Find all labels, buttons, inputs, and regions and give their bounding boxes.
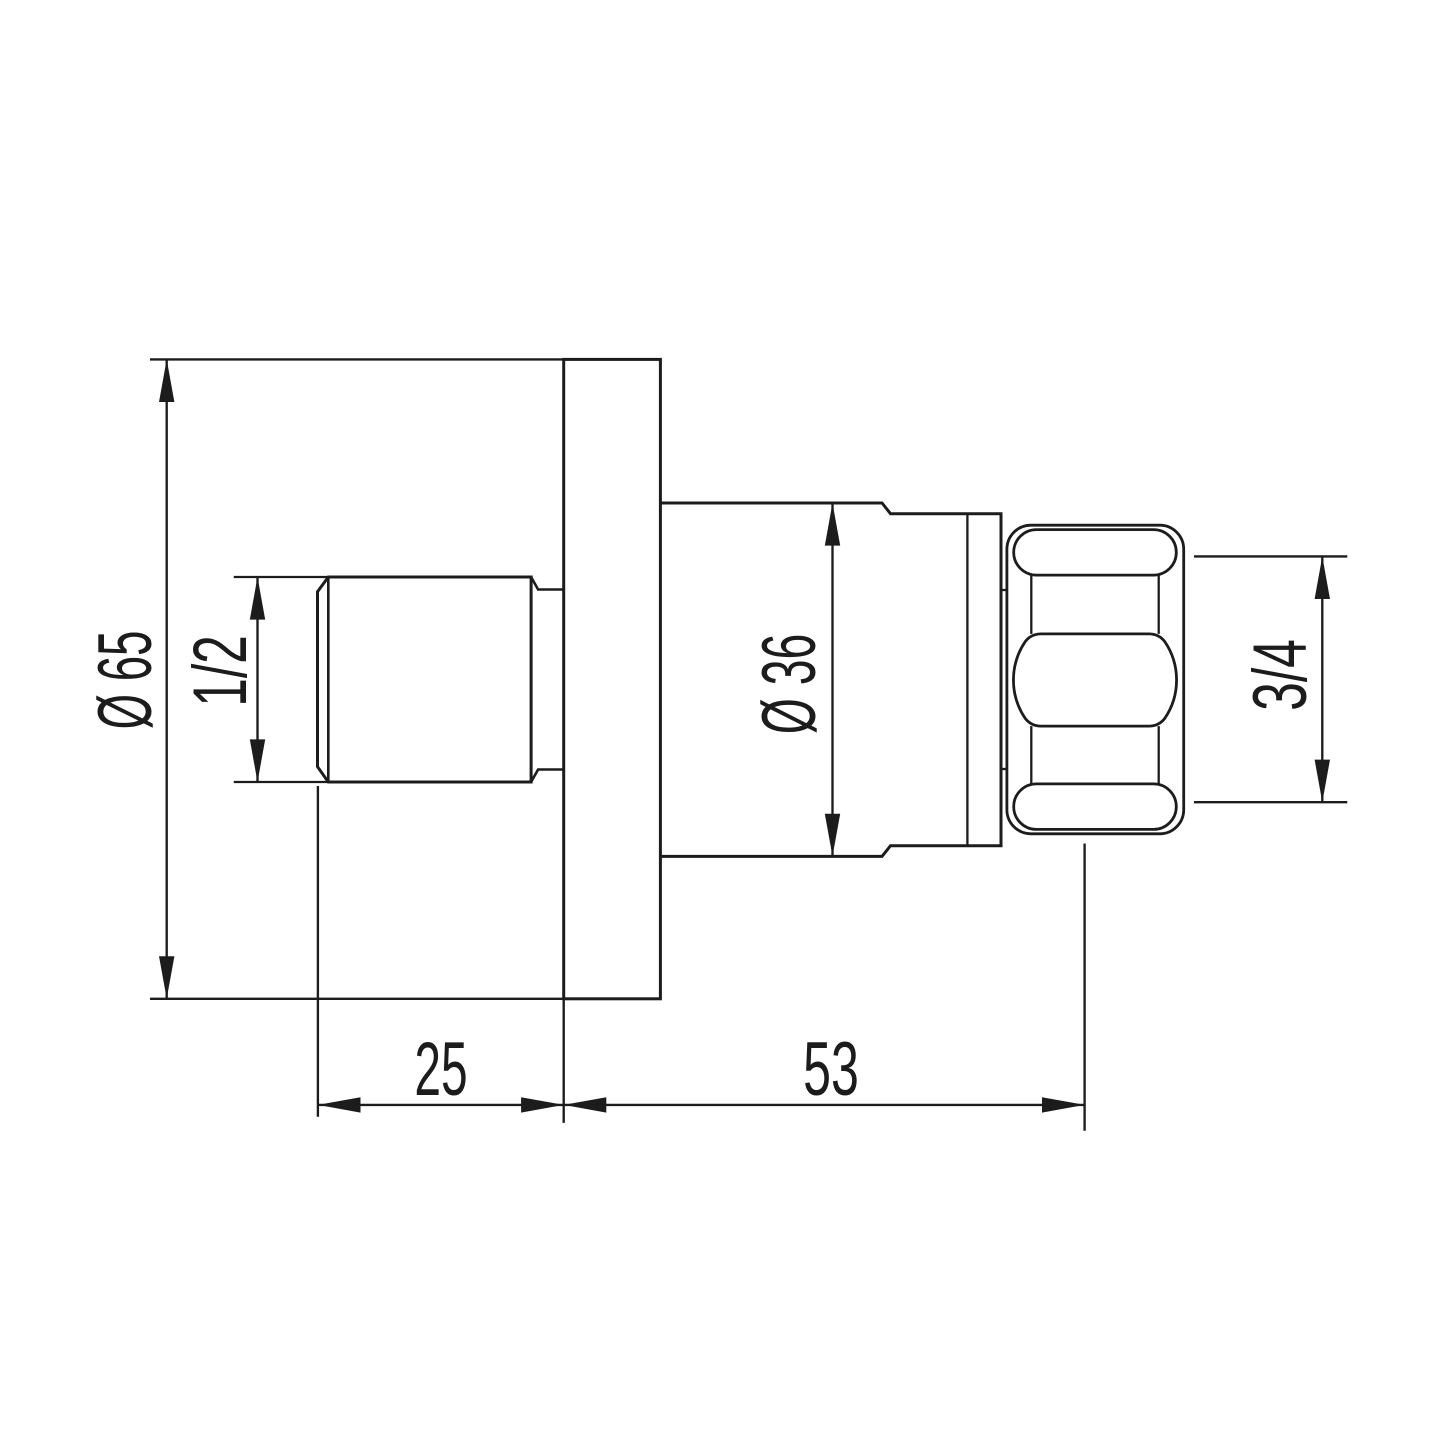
svg-text:53: 53 — [803, 1027, 859, 1112]
svg-text:3/4: 3/4 — [1237, 639, 1322, 711]
svg-text:Ø 65: Ø 65 — [83, 631, 168, 730]
svg-text:1/2: 1/2 — [177, 635, 262, 707]
svg-text:Ø 36: Ø 36 — [747, 634, 832, 734]
svg-text:25: 25 — [414, 1028, 467, 1112]
